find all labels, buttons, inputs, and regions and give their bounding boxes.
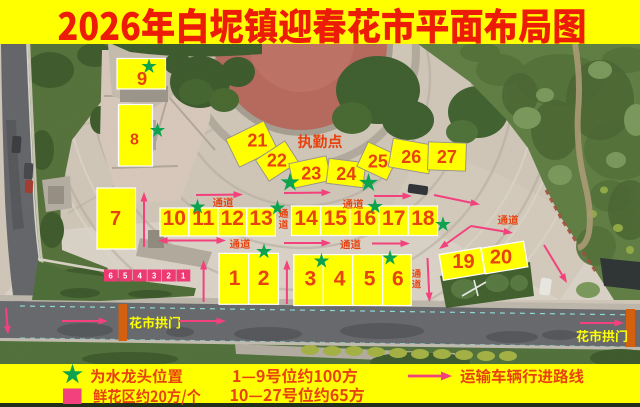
svg-text:5: 5 [364,268,376,291]
svg-text:1: 1 [229,267,241,290]
svg-text:6: 6 [392,268,404,291]
svg-text:23: 23 [301,163,321,183]
svg-text:14: 14 [294,207,318,230]
svg-text:27: 27 [437,147,457,167]
svg-text:20: 20 [490,247,512,269]
svg-text:4: 4 [334,268,346,291]
svg-text:10: 10 [163,207,186,230]
svg-text:18: 18 [411,207,435,230]
svg-text:2: 2 [167,272,172,281]
svg-text:24: 24 [336,164,356,184]
svg-text:12: 12 [221,207,244,230]
svg-text:2: 2 [258,267,270,290]
svg-text:7: 7 [110,208,121,230]
svg-text:1: 1 [181,272,186,281]
svg-text:15: 15 [324,207,348,230]
svg-text:5: 5 [123,272,128,281]
svg-text:3: 3 [152,272,157,281]
svg-text:8: 8 [130,131,139,148]
svg-text:19: 19 [452,251,474,273]
svg-text:4: 4 [138,272,143,281]
svg-text:6: 6 [109,272,114,281]
svg-text:17: 17 [382,207,405,230]
svg-text:26: 26 [401,147,421,167]
svg-text:13: 13 [249,207,272,230]
svg-text:21: 21 [247,131,267,151]
svg-text:25: 25 [368,151,388,171]
svg-text:22: 22 [267,151,287,171]
svg-text:3: 3 [305,268,317,291]
